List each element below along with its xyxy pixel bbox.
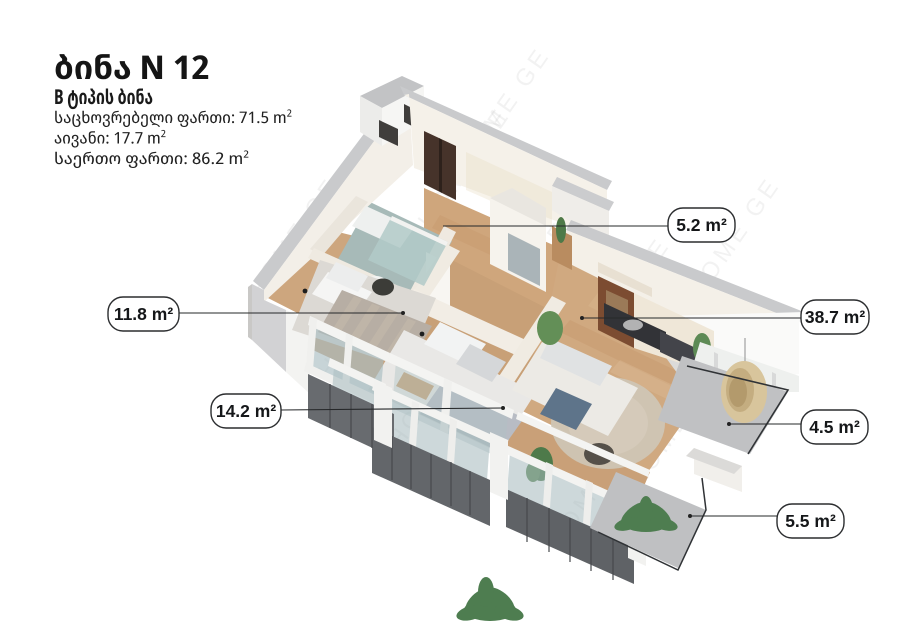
svg-text:5.5 m²: 5.5 m²	[785, 511, 836, 531]
svg-text:5.2 m²: 5.2 m²	[676, 215, 727, 235]
svg-text:38.7 m²: 38.7 m²	[805, 307, 865, 327]
svg-text:11.8 m²: 11.8 m²	[114, 304, 174, 324]
svg-text:14.2 m²: 14.2 m²	[216, 401, 276, 421]
svg-text:4.5 m²: 4.5 m²	[809, 417, 860, 437]
